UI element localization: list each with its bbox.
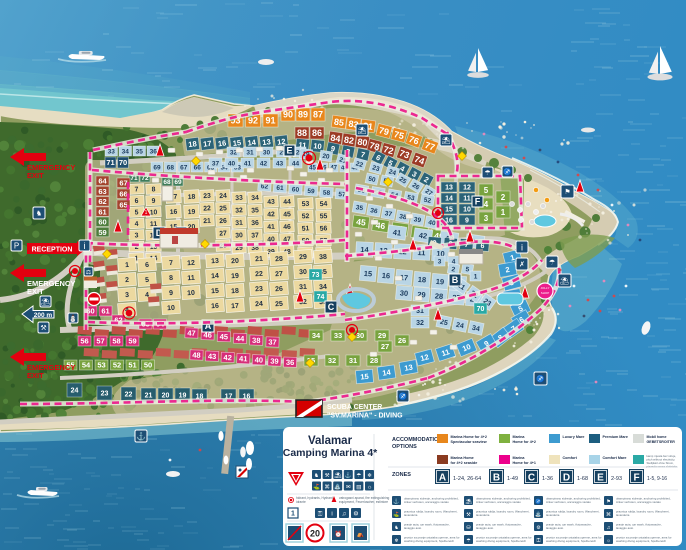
svg-text:13: 13 [445,185,453,192]
svg-text:21: 21 [255,256,263,264]
svg-text:washing diving equipment, Spul: washing diving equipment, Spulbereich [546,539,597,543]
svg-text:⚓: ⚓ [136,431,146,441]
svg-text:4: 4 [484,200,489,209]
svg-text:10: 10 [167,305,175,313]
svg-text:57: 57 [96,337,104,346]
svg-text:31: 31 [235,220,243,227]
svg-text:16: 16 [217,138,226,148]
svg-text:18: 18 [417,275,426,285]
svg-text:34: 34 [122,148,130,155]
svg-text:62: 62 [98,197,106,206]
svg-text:67: 67 [180,164,188,171]
svg-text:1-36: 1-36 [542,476,553,482]
svg-text:☼: ☼ [367,485,372,491]
svg-text:9: 9 [169,290,173,297]
svg-text:i: i [521,242,523,252]
svg-text:32: 32 [235,207,243,214]
svg-text:85: 85 [333,117,344,128]
svg-text:1: 1 [291,511,295,518]
svg-text:⛱: ⛱ [465,498,472,505]
svg-text:58: 58 [323,189,331,197]
svg-text:56: 56 [80,337,88,346]
svg-text:21: 21 [203,218,211,225]
svg-text:55: 55 [320,213,328,220]
svg-text:1: 1 [501,208,506,217]
svg-text:44: 44 [283,199,291,206]
svg-text:64: 64 [98,176,107,185]
svg-text:18: 18 [231,288,239,296]
svg-text:26: 26 [219,218,227,225]
svg-text:88: 88 [297,128,307,138]
svg-text:47: 47 [187,329,196,338]
svg-text:12: 12 [187,260,195,268]
svg-text:1-49: 1-49 [507,476,518,482]
svg-text:30: 30 [399,288,408,298]
svg-text:⚙: ⚙ [353,511,358,518]
svg-text:44: 44 [236,334,245,343]
svg-text:OPTIONS: OPTIONS [392,444,417,450]
svg-text:23: 23 [255,286,263,294]
svg-text:20: 20 [162,393,170,400]
svg-text:21: 21 [145,393,153,400]
svg-text:61: 61 [101,307,109,316]
svg-text:1: 1 [474,273,478,280]
svg-text:53: 53 [302,201,310,208]
svg-text:lavanderia: lavanderia [616,513,630,517]
svg-text:⛺: ⛺ [357,532,365,538]
svg-text:31: 31 [246,149,254,156]
svg-text:3: 3 [484,214,489,223]
svg-text:Luxury Mare: Luxury Mare [563,435,585,439]
svg-text:63: 63 [98,187,106,196]
svg-text:28: 28 [370,356,378,365]
svg-text:⛱: ⛱ [41,297,50,306]
svg-text:ACCOMMODATION: ACCOMMODATION [392,437,442,443]
svg-text:84: 84 [330,133,341,144]
svg-text:51: 51 [302,225,310,232]
svg-text:10: 10 [313,141,322,151]
svg-text:40: 40 [255,355,264,364]
svg-text:20: 20 [310,529,320,539]
svg-text:5: 5 [145,277,149,284]
svg-text:F: F [633,473,639,484]
svg-text:73: 73 [312,272,320,279]
svg-text:17: 17 [203,139,212,149]
svg-text:⌘: ⌘ [324,484,330,491]
svg-text:35: 35 [136,148,144,155]
svg-text:71: 71 [106,158,114,167]
svg-text:59: 59 [307,188,315,196]
svg-text:Premium Mare: Premium Mare [603,435,628,439]
svg-text:26: 26 [398,336,406,345]
svg-text:❄: ❄ [367,472,372,479]
svg-text:27: 27 [381,342,389,351]
svg-text:37: 37 [268,338,277,347]
svg-text:15: 15 [360,372,369,382]
svg-text:54: 54 [82,361,91,370]
svg-text:22: 22 [125,392,133,399]
svg-text:50: 50 [144,361,152,370]
svg-text:Marina Home for 4+2: Marina Home for 4+2 [451,435,487,439]
svg-text:equipment, Feuerloscher, estin: equipment, Feuerloscher, estintore [339,500,388,504]
svg-text:45: 45 [356,216,367,227]
svg-text:28: 28 [434,291,443,301]
svg-text:15: 15 [211,288,219,296]
svg-text:2: 2 [125,277,129,284]
svg-text:⚑: ⚑ [606,499,610,505]
svg-text:16: 16 [170,209,178,216]
svg-text:23: 23 [101,391,109,398]
svg-text:♐: ♐ [535,498,541,505]
svg-text:P: P [14,242,19,251]
svg-text:2: 2 [501,193,506,202]
svg-text:13: 13 [262,137,271,147]
svg-text:7: 7 [169,260,173,267]
svg-text:42: 42 [267,211,275,218]
svg-text:⛱: ⛱ [358,126,367,135]
svg-text:36: 36 [150,148,158,155]
svg-text:19: 19 [188,209,196,216]
svg-text:27: 27 [219,230,227,237]
svg-text:15: 15 [363,269,372,279]
svg-text:1: 1 [125,262,129,269]
svg-text:Anker verboten, ancoraggio vie: Anker verboten, ancoraggio vietato [404,500,449,504]
svg-text:⛳: ⛳ [313,484,320,491]
svg-text:Comfort: Comfort [563,456,578,460]
svg-text:⌘: ⌘ [606,512,611,518]
svg-text:33: 33 [235,195,243,202]
svg-text:19: 19 [179,393,187,400]
svg-text:69: 69 [174,179,182,186]
svg-text:⚓: ⚓ [345,472,352,479]
svg-text:42: 42 [223,353,232,362]
svg-text:Spectacular seaview: Spectacular seaview [451,440,487,444]
svg-text:25: 25 [275,301,283,309]
svg-text:34: 34 [312,331,321,340]
svg-text:19: 19 [435,277,444,287]
svg-text:32: 32 [328,356,336,365]
svg-text:30: 30 [263,149,271,156]
svg-text:for 4+2 seaside: for 4+2 seaside [451,461,478,465]
svg-text:"SV.MARINA" - DIVING: "SV.MARINA" - DIVING [327,413,403,420]
svg-text:♞: ♞ [314,472,319,479]
svg-text:41: 41 [244,160,252,167]
svg-text:66: 66 [119,189,127,198]
svg-text:46: 46 [283,224,291,231]
svg-text:56: 56 [320,225,328,232]
svg-text:EXIT: EXIT [27,287,44,296]
svg-text:66: 66 [194,164,202,171]
svg-text:6: 6 [134,198,138,205]
svg-text:87: 87 [313,110,323,120]
svg-text:15: 15 [232,138,241,148]
svg-text:A: A [439,473,446,484]
svg-text:18: 18 [188,139,197,149]
svg-text:Home for 4+2: Home for 4+2 [513,440,536,444]
svg-text:3: 3 [125,292,129,299]
svg-text:lavaggio auto: lavaggio auto [476,526,494,530]
svg-text:35: 35 [251,207,259,214]
svg-text:86: 86 [312,128,322,138]
svg-text:E: E [597,473,604,484]
svg-text:68: 68 [167,164,175,171]
svg-text:42: 42 [418,231,428,241]
svg-text:⚿: ⚿ [318,511,323,518]
svg-text:lavaggio auto: lavaggio auto [404,526,422,530]
svg-text:3: 3 [438,258,442,265]
svg-text:✉: ✉ [346,485,351,491]
svg-text:30: 30 [235,232,243,239]
svg-text:Comfort Mare: Comfort Mare [603,456,627,460]
svg-text:☼: ☼ [606,538,611,544]
svg-text:⛲: ⛲ [535,511,541,518]
svg-text:12: 12 [463,185,471,192]
svg-text:20: 20 [231,258,239,266]
svg-text:38: 38 [252,336,261,345]
svg-text:18: 18 [188,194,196,201]
svg-text:♞: ♞ [394,525,398,531]
svg-text:⚖: ⚖ [86,269,92,276]
svg-text:SCUBA CENTER: SCUBA CENTER [327,404,382,411]
svg-text:29: 29 [299,254,307,262]
svg-text:24: 24 [255,301,263,309]
svg-text:⛁: ⛁ [466,525,470,531]
svg-text:32: 32 [416,320,424,327]
svg-text:6: 6 [145,262,149,269]
svg-text:B: B [452,275,459,285]
svg-text:34: 34 [319,284,327,292]
svg-text:24: 24 [219,193,227,200]
svg-text:36: 36 [286,358,295,367]
svg-text:5: 5 [484,186,489,195]
svg-text:70: 70 [477,306,485,313]
svg-text:34: 34 [251,195,259,202]
svg-text:61: 61 [98,207,106,216]
svg-text:Mobil home: Mobil home [647,435,667,439]
svg-text:Marina: Marina [513,456,526,460]
svg-text:74: 74 [317,294,325,301]
svg-text:52: 52 [113,361,121,370]
svg-text:14: 14 [445,196,453,203]
svg-text:51: 51 [128,361,136,370]
svg-text:42: 42 [260,160,268,167]
svg-text:11: 11 [187,275,195,283]
svg-text:2-93: 2-93 [611,476,622,482]
svg-text:26: 26 [275,286,283,294]
svg-text:68: 68 [163,179,171,186]
svg-text:☂: ☂ [484,169,490,177]
svg-text:22: 22 [203,205,211,212]
svg-text:19: 19 [231,273,239,281]
svg-text:37: 37 [251,232,259,239]
svg-text:9: 9 [151,198,155,205]
svg-text:D: D [563,473,570,484]
svg-text:8: 8 [151,186,155,193]
svg-text:♐: ♐ [503,167,512,176]
svg-text:♞: ♞ [36,210,42,218]
svg-text:B: B [493,473,500,484]
svg-text:59: 59 [98,228,106,237]
svg-text:13: 13 [211,258,219,266]
svg-text:⛱: ⛱ [560,276,569,285]
svg-text:☂: ☂ [549,259,555,267]
svg-text:Valamar: Valamar [308,435,353,447]
svg-text:58: 58 [112,337,120,346]
svg-text:54: 54 [320,201,328,208]
svg-text:200 m: 200 m [34,312,53,319]
svg-text:C: C [528,473,535,484]
svg-text:lavanderia: lavanderia [546,513,560,517]
svg-text:8: 8 [169,275,173,282]
svg-text:⛱: ⛱ [334,472,341,479]
svg-text:90: 90 [283,110,293,120]
svg-text:♫: ♫ [342,512,347,518]
svg-text:36: 36 [251,220,259,227]
svg-text:31: 31 [349,356,357,365]
svg-text:SHOP: SHOP [541,291,550,295]
svg-text:91: 91 [265,116,275,126]
svg-text:⚑: ⚑ [564,188,570,196]
svg-text:Anker verboten, ancoraggio vie: Anker verboten, ancoraggio vietato [616,500,661,504]
svg-text:lavanderia: lavanderia [404,513,418,517]
svg-text:10: 10 [187,290,195,298]
svg-text:Camping Marina 4*: Camping Marina 4* [283,447,378,459]
svg-text:i: i [84,241,86,251]
svg-text:▤: ▤ [356,485,362,491]
svg-text:lavanderia: lavanderia [476,513,490,517]
svg-text:41: 41 [392,228,402,238]
svg-text:11: 11 [463,196,471,203]
svg-text:5: 5 [134,209,138,216]
svg-text:⏰: ⏰ [335,530,342,538]
svg-text:53: 53 [97,361,105,370]
svg-text:40: 40 [228,160,236,167]
svg-text:washing diving equipment, Spul: washing diving equipment, Spulbereich [616,539,667,543]
svg-text:16: 16 [211,303,219,311]
svg-text:43: 43 [208,352,217,361]
svg-text:❄: ❄ [394,538,398,544]
svg-text:48: 48 [192,351,201,360]
svg-text:9: 9 [465,218,469,225]
svg-text:82: 82 [343,135,354,146]
svg-text:lavaggio auto: lavaggio auto [616,526,634,530]
svg-text:♫: ♫ [607,525,611,531]
svg-text:30: 30 [299,269,307,277]
svg-text:♐: ♐ [399,392,408,401]
svg-text:EXIT: EXIT [27,171,44,180]
svg-text:♐: ♐ [536,374,545,383]
svg-text:27: 27 [275,271,283,279]
svg-text:10: 10 [463,207,471,214]
svg-text:45: 45 [283,211,291,218]
svg-text:4: 4 [134,221,138,228]
svg-text:piazzola senza elettricita: piazzola senza elettricita [647,465,678,469]
svg-text:ZONES: ZONES [392,472,411,478]
svg-text:45: 45 [309,166,316,172]
svg-text:⚙: ⚙ [536,525,541,531]
svg-text:GEBETSROITER: GEBETSROITER [647,440,676,444]
svg-text:60: 60 [98,217,106,226]
svg-text:60: 60 [292,186,300,194]
svg-text:Anker verboten, ancoraggio vie: Anker verboten, ancoraggio vietato [476,500,521,504]
svg-text:⚓: ⚓ [393,498,399,505]
svg-text:43: 43 [276,160,284,167]
svg-text:7: 7 [134,186,138,193]
svg-text:41: 41 [239,354,248,363]
svg-text:EXIT: EXIT [27,371,44,380]
svg-text:33: 33 [108,148,116,155]
svg-text:67: 67 [119,178,127,187]
svg-text:37: 37 [212,160,220,167]
svg-text:59: 59 [128,337,136,346]
svg-text:29: 29 [378,331,386,340]
svg-text:1-5, 9-16: 1-5, 9-16 [647,476,667,482]
svg-text:1-68: 1-68 [577,476,588,482]
svg-text:25: 25 [219,205,227,212]
svg-text:⛲: ⛲ [334,484,341,491]
svg-text:RECEPTION: RECEPTION [32,247,73,254]
svg-text:⛄: ⛄ [69,314,78,323]
svg-text:washing diving equipment, Spul: washing diving equipment, Spulbereich [404,539,455,543]
svg-text:24: 24 [71,388,79,395]
svg-text:✗: ✗ [519,261,525,269]
svg-text:70: 70 [119,158,127,167]
svg-text:⚿: ⚿ [537,538,541,544]
svg-text:52: 52 [302,213,310,220]
svg-text:idrante: idrante [296,500,306,504]
svg-text:Anker verboten, ancoraggio vie: Anker verboten, ancoraggio vietato [546,500,591,504]
svg-text:washing diving equipment, Spul: washing diving equipment, Spulbereich [476,539,527,543]
svg-text:17: 17 [231,303,239,311]
svg-text:i: i [331,512,332,518]
svg-text:Marina Home: Marina Home [451,456,474,460]
svg-text:14: 14 [211,273,219,281]
svg-text:⚒: ⚒ [40,324,46,332]
svg-text:Home for 4+1: Home for 4+1 [513,461,536,465]
svg-text:69: 69 [153,164,161,171]
svg-text:Marina: Marina [513,435,526,439]
svg-text:41: 41 [267,224,275,231]
svg-text:65: 65 [119,200,127,209]
svg-text:20: 20 [322,153,331,161]
svg-text:1: 1 [145,210,148,216]
svg-text:13: 13 [404,363,414,373]
svg-text:39: 39 [270,357,279,366]
svg-text:E: E [286,146,292,156]
svg-text:JOLLY: JOLLY [541,286,550,290]
svg-text:61: 61 [276,185,284,193]
svg-text:⛳: ⛳ [393,511,399,518]
svg-text:89: 89 [298,110,308,120]
svg-text:F: F [475,197,481,207]
svg-text:⛱: ⛱ [442,136,451,145]
svg-text:15: 15 [445,207,453,214]
svg-text:☂: ☂ [466,538,471,544]
svg-text:22: 22 [255,271,263,279]
svg-text:3: 3 [134,232,138,239]
svg-text:⚒: ⚒ [466,512,471,518]
svg-text:80: 80 [357,137,368,148]
svg-text:38: 38 [319,254,327,262]
svg-text:45: 45 [220,332,229,341]
svg-text:33: 33 [334,331,342,340]
svg-text:23: 23 [203,193,211,200]
svg-text:1-24, 26-64: 1-24, 26-64 [453,476,481,482]
svg-text:28: 28 [275,256,283,264]
svg-text:16: 16 [381,271,390,281]
svg-text:lavaggio auto: lavaggio auto [546,526,564,530]
svg-text:43: 43 [267,199,275,206]
